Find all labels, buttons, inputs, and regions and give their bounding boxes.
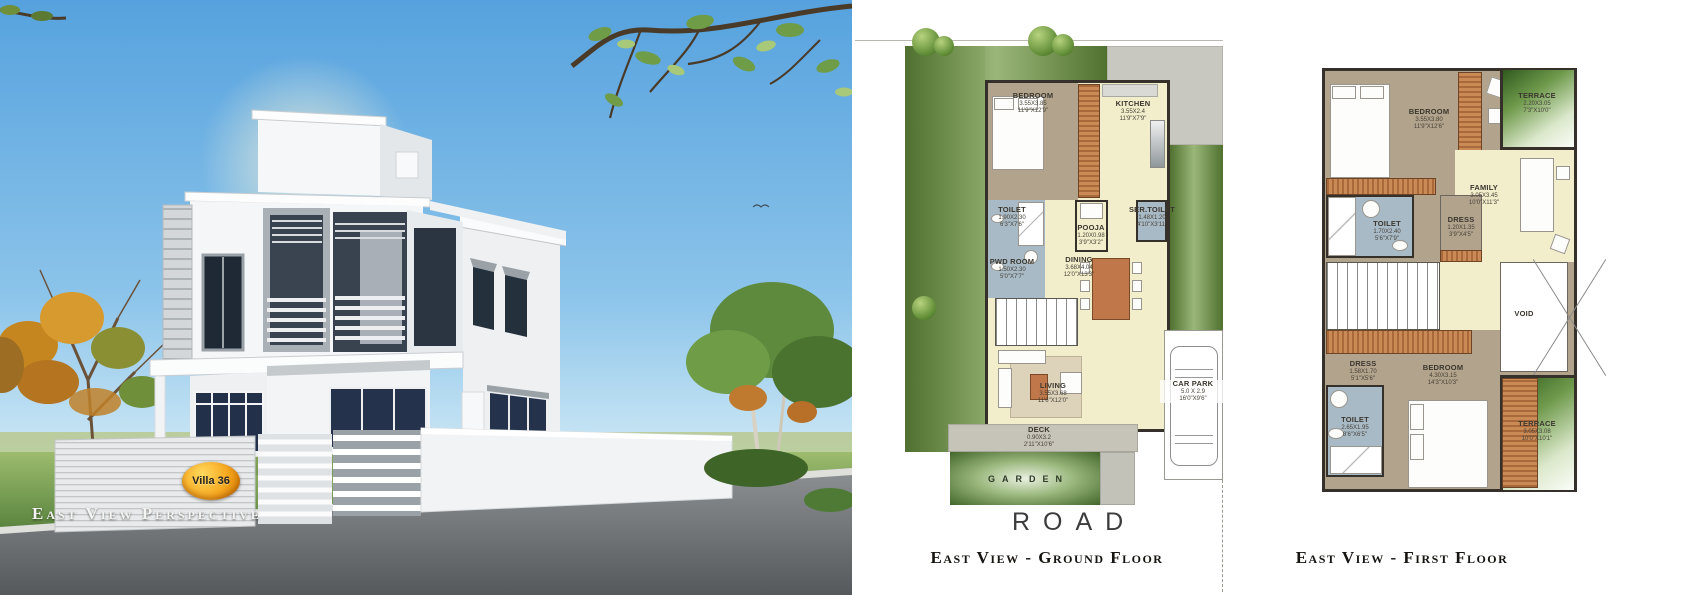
ff-pillow	[1360, 86, 1384, 99]
gf-wc	[991, 214, 1004, 223]
gf-sofa	[998, 368, 1012, 408]
gf-chair	[1080, 280, 1090, 292]
ff-pillow	[1410, 434, 1424, 460]
gf-chair	[1080, 262, 1090, 274]
gf-chair	[1060, 372, 1082, 394]
ff-corridor	[1440, 262, 1500, 330]
gf-dining-table	[1092, 258, 1130, 320]
ff-terrace1	[1500, 70, 1574, 150]
villa-brochure: Villa 36 East View Perspective	[0, 0, 1701, 595]
gf-deck	[948, 424, 1138, 452]
car-icon	[1170, 346, 1218, 466]
plan-tree-icon	[1052, 34, 1074, 56]
gf-chair	[1080, 298, 1090, 310]
ff-void	[1500, 262, 1568, 372]
ff-stairs	[1326, 262, 1440, 330]
gf-chair	[1132, 262, 1142, 274]
ff-shower2	[1330, 446, 1382, 474]
gf-fridge	[1150, 120, 1165, 168]
gf-pooja-niche	[1080, 203, 1103, 219]
gf-sofa	[998, 350, 1046, 364]
ff-pillow	[1332, 86, 1356, 99]
gf-room-ser-toilet	[1136, 200, 1167, 242]
gf-pwd-wc	[991, 262, 1004, 271]
gf-chair	[1132, 298, 1142, 310]
perspective-panel: Villa 36 East View Perspective	[0, 0, 852, 595]
gf-shower	[1018, 202, 1044, 246]
ff-wardrobe-strip2	[1326, 330, 1472, 354]
ff-pillow	[1410, 404, 1424, 430]
gf-coffee-table	[1030, 374, 1048, 400]
driveway-dash	[1222, 480, 1223, 592]
gf-garden-strip-left	[905, 46, 985, 452]
ff-basin1	[1362, 200, 1380, 218]
villa-badge: Villa 36	[182, 462, 240, 500]
first-floor-caption: East View - First Floor	[1262, 548, 1542, 568]
gf-wardrobe	[1078, 84, 1100, 198]
plan-tree-icon	[912, 296, 936, 320]
gf-chair	[1132, 280, 1142, 292]
gf-pwd-basin	[1024, 250, 1038, 264]
ff-wc2	[1328, 428, 1344, 439]
gf-kitchen-counter	[1102, 84, 1158, 97]
ff-dress1-shelf	[1440, 250, 1482, 262]
ff-wardrobe-top	[1458, 72, 1482, 154]
gf-pillow	[1018, 98, 1038, 110]
plan-tree-icon	[934, 36, 954, 56]
ff-side-table	[1556, 166, 1570, 180]
gf-entry-walk	[1100, 452, 1135, 505]
ground-floor-caption: East View - Ground Floor	[907, 548, 1187, 568]
villa-badge-label: Villa 36	[192, 475, 230, 487]
ff-wc1	[1392, 240, 1408, 251]
ff-shower1	[1328, 197, 1356, 256]
ff-basin2	[1330, 390, 1348, 408]
gf-garden-strip-right	[1170, 145, 1223, 330]
plans-panel: BEDROOM 3.55X3.85 11'9"X12'9" KITCHEN 3.…	[852, 0, 1701, 595]
road-label: ROAD	[1012, 508, 1136, 537]
gf-stairs	[995, 298, 1078, 346]
ff-sofa	[1520, 158, 1554, 232]
ff-terrace2-deck	[1502, 378, 1538, 488]
gf-pillow	[994, 98, 1014, 110]
perspective-caption: East View Perspective	[32, 504, 262, 524]
ff-wardrobe-strip1	[1326, 178, 1436, 195]
garden-label: GARDEN	[988, 474, 1069, 484]
compound-wall-plain	[421, 428, 732, 512]
